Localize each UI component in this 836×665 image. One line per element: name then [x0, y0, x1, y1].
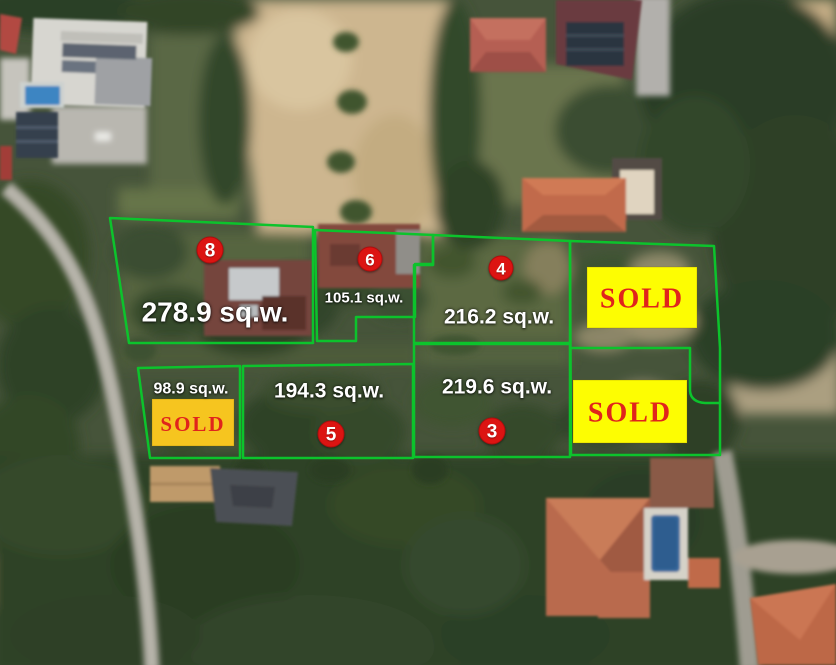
plot-5-number: 5 [326, 425, 337, 446]
sold-label-left: SOLD [160, 412, 225, 436]
plot-6-area-label: 105.1 sq.w. [325, 290, 404, 307]
brown-roof-house [650, 458, 714, 508]
plot-4-number: 4 [496, 260, 506, 279]
plot-4-area-label: 216.2 sq.w. [444, 306, 554, 329]
top-left-pool [25, 86, 60, 105]
corner-roof-house [750, 584, 836, 665]
plot-98-area-label: 98.9 sq.w. [154, 381, 229, 398]
gray-roof-house [210, 468, 298, 526]
orange-roof-house [522, 178, 626, 232]
sold-label-upper-right: SOLD [600, 284, 684, 315]
plot-5-area-label: 194.3 sq.w. [274, 380, 384, 403]
sold-label-lower-right: SOLD [588, 398, 672, 429]
plot-8-number: 8 [205, 241, 216, 262]
solar-panel-array [16, 112, 58, 158]
plot-3-area-label: 219.6 sq.w. [442, 376, 552, 399]
aerial-photo-background [0, 0, 836, 665]
big-house-bottom-right [546, 498, 650, 618]
land-plot-satellite-map: SOLD SOLD SOLD 8 6 4 5 3 278.9 sq.w. 105… [0, 0, 836, 665]
car [95, 132, 111, 141]
red-roof-house-top [470, 18, 546, 72]
plot-6-number: 6 [365, 251, 374, 270]
plot-3-number: 3 [487, 422, 498, 443]
driveway-top-right [636, 0, 670, 96]
small-orange-building [688, 558, 720, 588]
plot-8-area-label: 278.9 sq.w. [142, 297, 289, 328]
